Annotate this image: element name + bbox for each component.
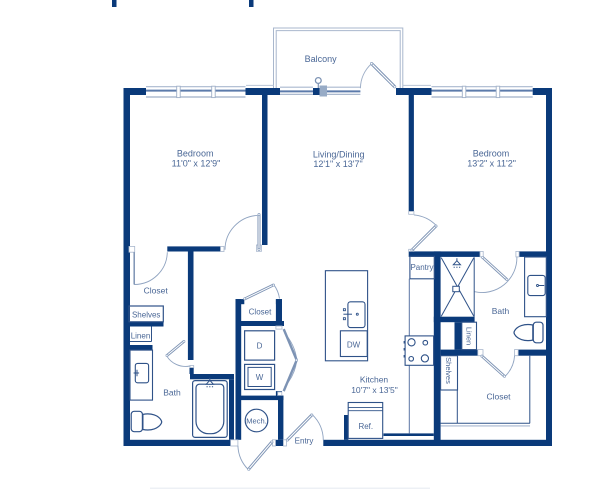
svg-text:Closet: Closet [144,286,169,296]
svg-text:Linen: Linen [131,332,151,341]
svg-text:Bath: Bath [492,306,510,316]
svg-text:Kitchen: Kitchen [360,375,389,385]
svg-text:Balcony: Balcony [305,54,338,64]
svg-text:11'0" x 12'9": 11'0" x 12'9" [172,159,221,169]
svg-text:13'2" x 11'2": 13'2" x 11'2" [467,159,516,169]
svg-text:Pantry: Pantry [410,263,433,272]
svg-text:W: W [256,373,264,382]
svg-text:12'1" x 13'7": 12'1" x 13'7" [313,159,362,169]
svg-text:D: D [257,342,263,351]
svg-text:Living/Dining: Living/Dining [313,150,365,160]
svg-text:Linen: Linen [465,327,474,345]
svg-text:Shelves: Shelves [132,311,160,320]
svg-text:DW: DW [347,341,361,350]
svg-text:Bedroom: Bedroom [473,149,510,159]
svg-text:Mech.: Mech. [246,417,266,426]
svg-text:Closet: Closet [249,308,272,317]
svg-text:Shelves: Shelves [444,357,453,384]
svg-text:Entry: Entry [295,437,314,446]
svg-text:Ref.: Ref. [358,422,373,431]
svg-text:Closet: Closet [486,392,511,402]
svg-text:Bedroom: Bedroom [177,149,214,159]
svg-text:Bath: Bath [163,388,181,398]
svg-text:10'7" x 13'5": 10'7" x 13'5" [351,385,398,395]
